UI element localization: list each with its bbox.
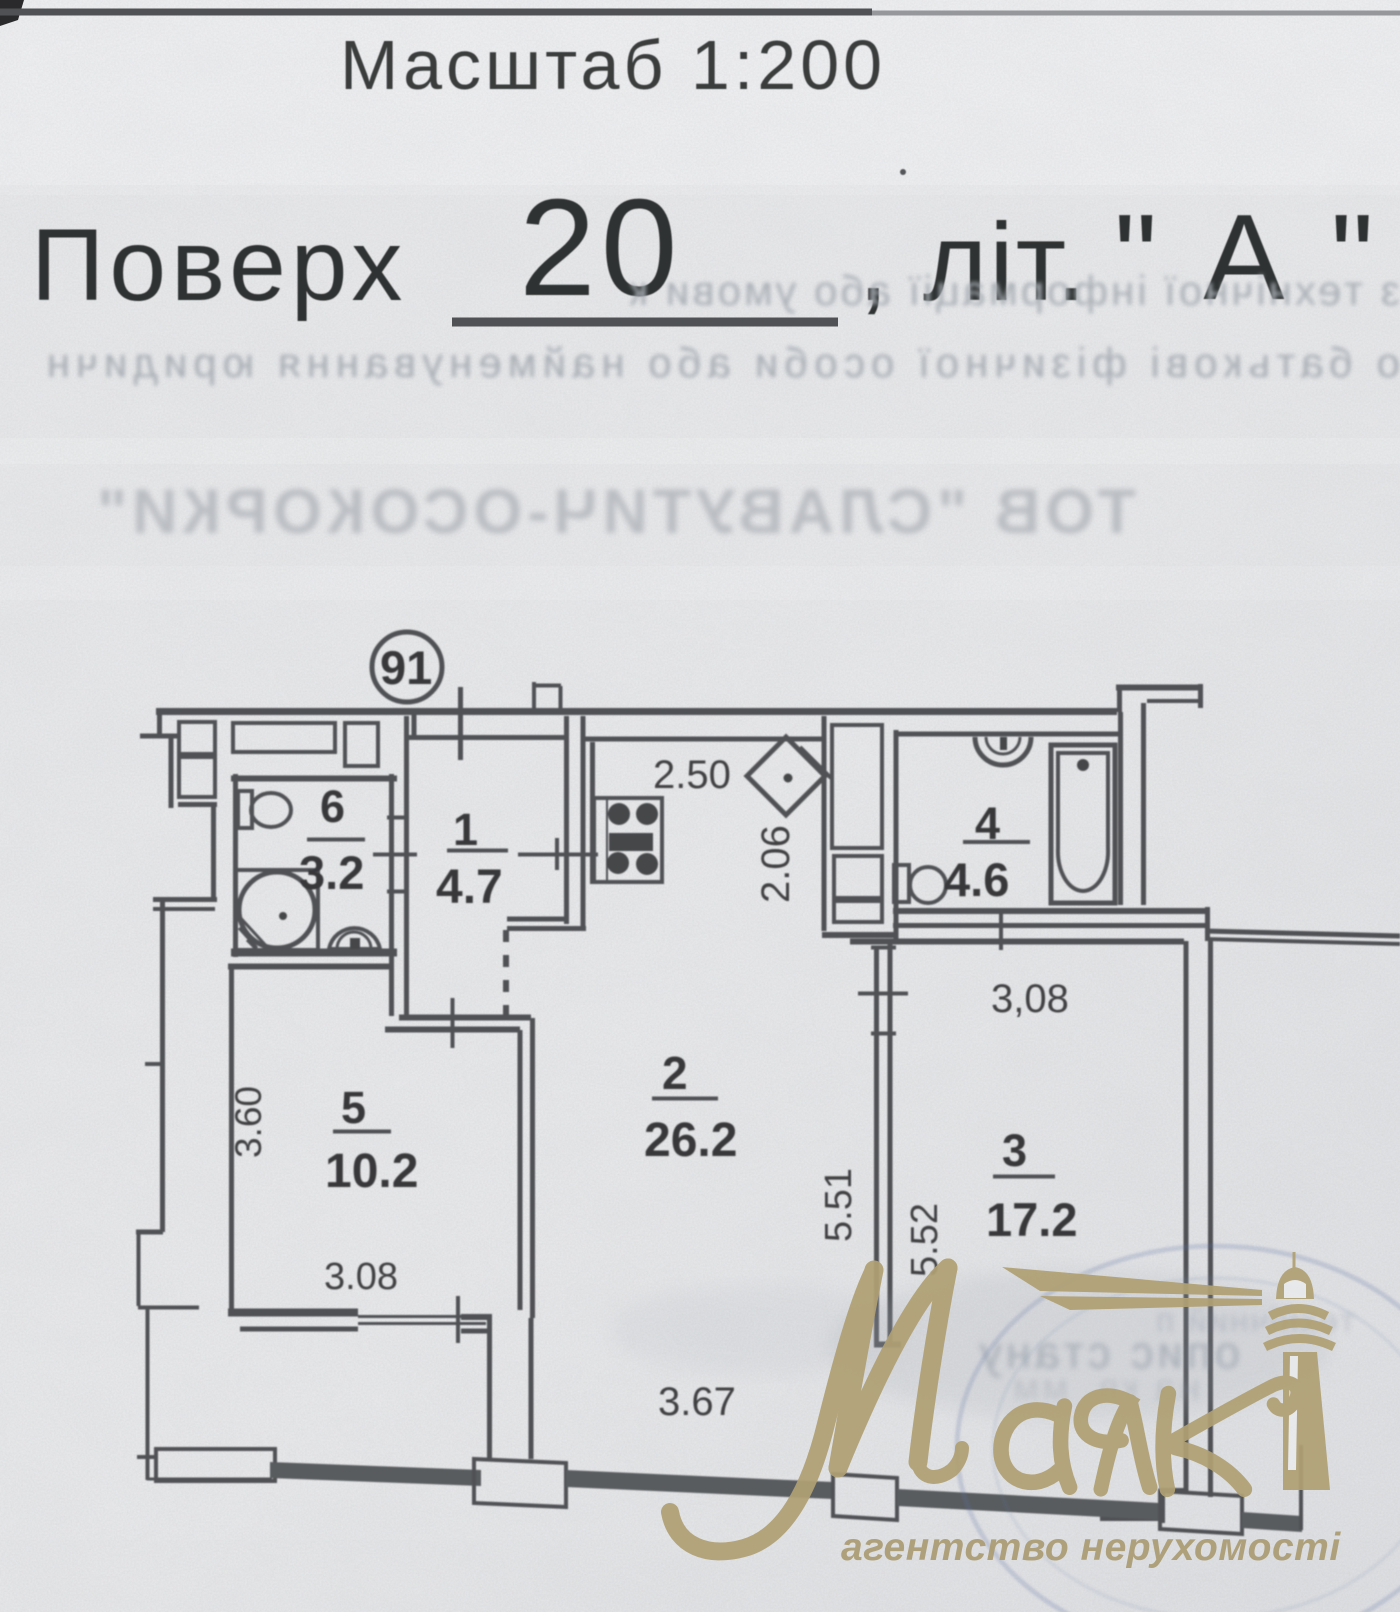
svg-text:6: 6 bbox=[320, 781, 345, 832]
svg-text:Масштаб 1:200: Масштаб 1:200 bbox=[340, 26, 886, 104]
svg-text:5: 5 bbox=[341, 1082, 366, 1133]
svg-text:3.60: 3.60 bbox=[228, 1086, 269, 1158]
svg-text:3,08: 3,08 bbox=[991, 977, 1069, 1021]
svg-text:3.2: 3.2 bbox=[299, 846, 364, 899]
svg-text:4.7: 4.7 bbox=[436, 861, 503, 914]
svg-text:4.6: 4.6 bbox=[944, 853, 1009, 906]
svg-text:2.50: 2.50 bbox=[653, 753, 731, 797]
svg-text:17.2: 17.2 bbox=[986, 1193, 1077, 1246]
svg-text:2: 2 bbox=[662, 1047, 688, 1099]
svg-text:91: 91 bbox=[380, 641, 432, 694]
svg-text:агентство нерухомості: агентство нерухомості bbox=[841, 1526, 1341, 1569]
svg-text:2.06: 2.06 bbox=[754, 825, 798, 903]
svg-text:3.08: 3.08 bbox=[324, 1256, 398, 1298]
svg-text:10.2: 10.2 bbox=[325, 1145, 418, 1198]
svg-text:ТОВ "СЛАВУТИЧ-ОСОКОРКИ": ТОВ "СЛАВУТИЧ-ОСОКОРКИ" bbox=[92, 477, 1136, 547]
svg-text:5.51: 5.51 bbox=[818, 1168, 860, 1242]
svg-text:Поверх: Поверх bbox=[31, 208, 407, 322]
svg-text:3.67: 3.67 bbox=[658, 1380, 736, 1424]
svg-text:технічний п: технічний п bbox=[1154, 1302, 1355, 1340]
svg-text:о батькові фізичної особи або: о батькові фізичної особи або найменуван… bbox=[41, 339, 1400, 386]
svg-text:3: 3 bbox=[1002, 1125, 1027, 1176]
svg-text:26.2: 26.2 bbox=[644, 1114, 737, 1167]
svg-text:з технічної інформації або умо: з технічної інформації або умови к bbox=[627, 267, 1400, 314]
svg-text:1: 1 bbox=[453, 804, 478, 855]
